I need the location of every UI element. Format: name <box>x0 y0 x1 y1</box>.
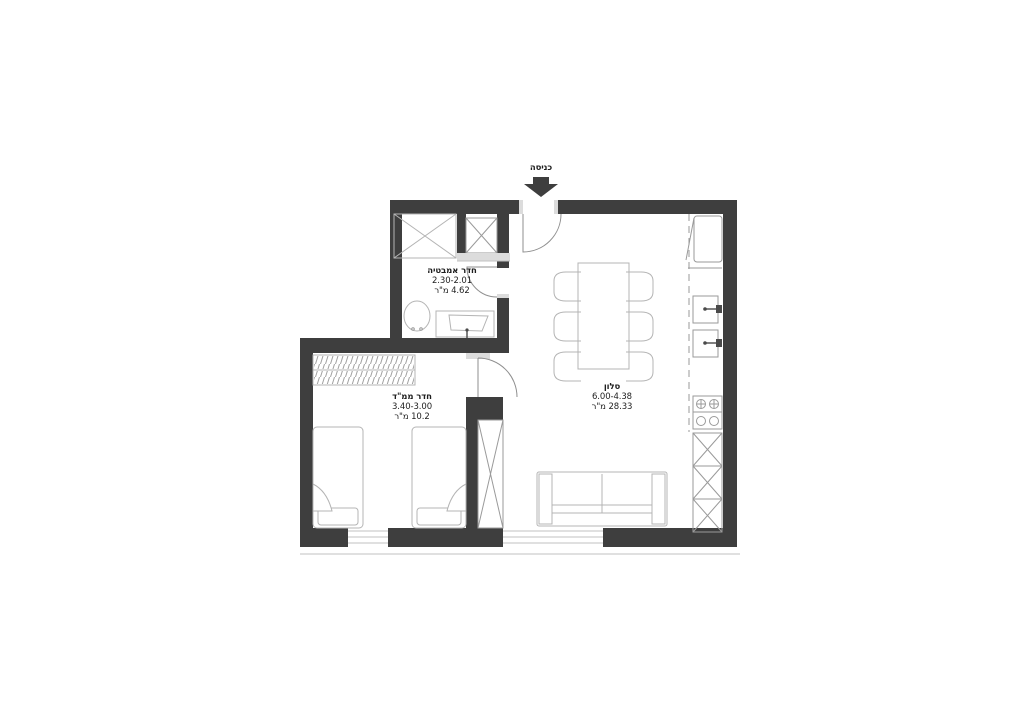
toilet <box>404 301 430 331</box>
entrance-arrow-icon <box>524 177 558 197</box>
room-area: 4.62 מ"ר <box>427 286 477 296</box>
kitchen-sink-1 <box>693 296 722 323</box>
room-name: חדר אמבטיה <box>427 266 477 276</box>
bed-right <box>412 427 466 528</box>
chair <box>626 272 653 301</box>
fridge <box>686 216 722 262</box>
room-area: 10.2 מ"ר <box>392 412 432 422</box>
bedroom-window <box>348 531 388 543</box>
room-label-safe-room: חדר ממ"ד 3.40-3.00 10.2 מ"ר <box>392 392 432 422</box>
floor-plan-canvas: כניסה חדר אמבטיה 2.30-2.01 4.62 מ"ר חדר … <box>0 0 1024 724</box>
sofa <box>537 472 667 526</box>
bathtub <box>394 214 456 258</box>
bedroom-closet-shaft <box>478 420 503 528</box>
floor-plan-drawing <box>0 0 1024 724</box>
closet <box>313 355 415 385</box>
vanity-sink <box>436 311 494 338</box>
room-dimensions: 3.40-3.00 <box>392 402 432 412</box>
room-label-living-room: סלון 6.00-4.38 28.33 מ"ר <box>592 382 633 412</box>
room-name: סלון <box>592 382 633 392</box>
chair <box>554 352 581 381</box>
bedroom-door-swing <box>478 358 517 397</box>
room-dimensions: 6.00-4.38 <box>592 392 633 402</box>
chair <box>626 312 653 341</box>
dining-table <box>578 263 629 369</box>
kitchen-sink-2 <box>693 330 722 357</box>
entry-door-swing <box>523 214 561 252</box>
entrance-label: כניסה <box>530 163 552 173</box>
chair <box>626 352 653 381</box>
stove <box>693 396 722 429</box>
room-dimensions: 2.30-2.01 <box>427 276 477 286</box>
living-room-window <box>503 531 603 543</box>
chair <box>554 312 581 341</box>
room-name: חדר ממ"ד <box>392 392 432 402</box>
bed-left <box>313 427 363 528</box>
room-area: 28.33 מ"ר <box>592 402 633 412</box>
room-label-bathroom: חדר אמבטיה 2.30-2.01 4.62 מ"ר <box>427 266 477 296</box>
dining-chairs <box>554 272 653 381</box>
kitchen-cabinets <box>693 433 722 532</box>
chair <box>554 272 581 301</box>
